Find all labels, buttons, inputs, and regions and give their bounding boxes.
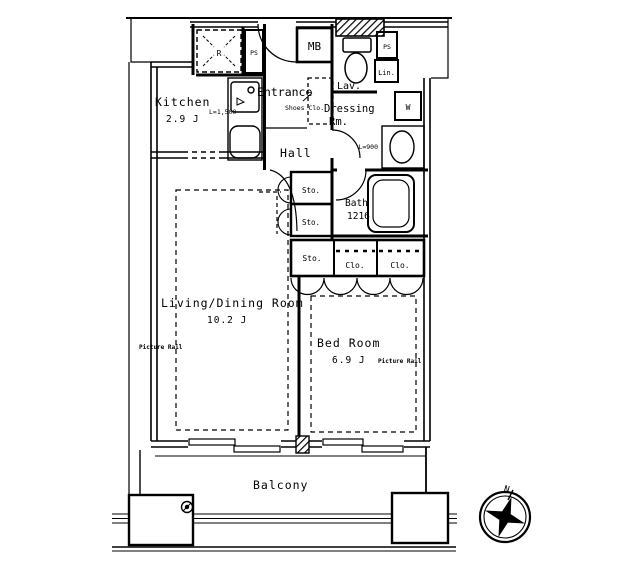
hall-storage-lower-label: Sto. [302,218,320,227]
kitchen-south-wall [151,152,264,158]
center-post [296,436,309,453]
closet-2-label: Clo. [390,261,409,270]
bath-size-label: 1216 [347,211,370,222]
picture-rail-living-line [176,190,288,430]
linen-closet-label: Lin. [378,69,395,77]
meter-box: MB [297,28,332,62]
closet-1-label: Clo. [345,261,364,270]
linen-closet: Lin. [375,60,398,82]
hall-storage-upper-label: Sto. [302,186,320,195]
bedroom-window-panel-1 [323,439,363,445]
pipe-space-kitchen-label: PS [250,49,258,57]
bedroom-area-label: 6.9 J [332,355,366,366]
meter-box-label: MB [308,40,322,53]
bedroom-label: Bed Room [317,336,380,350]
floor-plan-drawing: R PS MB PS Lin. Shoes Clo. W L=900 [0,0,640,569]
closet-row: Sto. Clo. Clo. [291,240,424,295]
toilet-icon [343,38,371,83]
compass: N [479,485,532,544]
drain-icon [182,502,193,513]
pipe-space-lavatory-label: PS [383,43,391,51]
floor-plan: R PS MB PS Lin. Shoes Clo. W L=900 [0,0,640,569]
bath-door-arc [336,170,366,200]
bedroom-window-panel-2 [362,446,403,452]
dressing-room-label-1: Dressing [324,103,375,115]
bathtub-icon [368,175,414,232]
washing-machine-label: W [406,103,411,112]
closet-row-storage-label: Sto. [302,254,321,263]
picture-rail-bedroom-label: Picture Rail [378,358,422,365]
stove-icon [230,126,260,158]
dressing-room-label-2: Rm. [329,116,348,128]
dressing-door-arc [332,130,360,158]
picture-rail-living-label: Picture Rail [139,344,183,351]
kitchen-label: Kitchen [155,95,210,109]
washbasin-length-label: L=900 [358,143,378,151]
living-window-panel-2 [234,446,280,452]
refrigerator-label: R [217,49,222,58]
balcony-label: Balcony [253,478,308,492]
kitchen-counter-length-label: L=1,500 [209,108,236,116]
refrigerator-space: R [197,30,241,72]
living-window-panel-1 [189,439,235,445]
north-label: N [503,485,511,496]
balcony-pillar-right [392,493,448,543]
lavatory-label: Lav. [337,81,361,92]
washbasin: L=900 [358,126,424,168]
bath-label: Bath [345,198,368,209]
entrance-label: Entrance [257,85,312,99]
compass-star [479,491,532,544]
living-dining-area-label: 10.2 J [207,315,247,326]
balcony-structure [112,447,457,551]
shoes-closet-label: Shoes Clo. [285,104,324,112]
closet-doors-scallops [291,278,423,295]
washing-machine: W [395,92,421,120]
living-dining-label: Living/Dining Room [161,296,304,310]
hall-label: Hall [280,146,312,160]
kitchen-area-label: 2.9 J [166,114,200,125]
